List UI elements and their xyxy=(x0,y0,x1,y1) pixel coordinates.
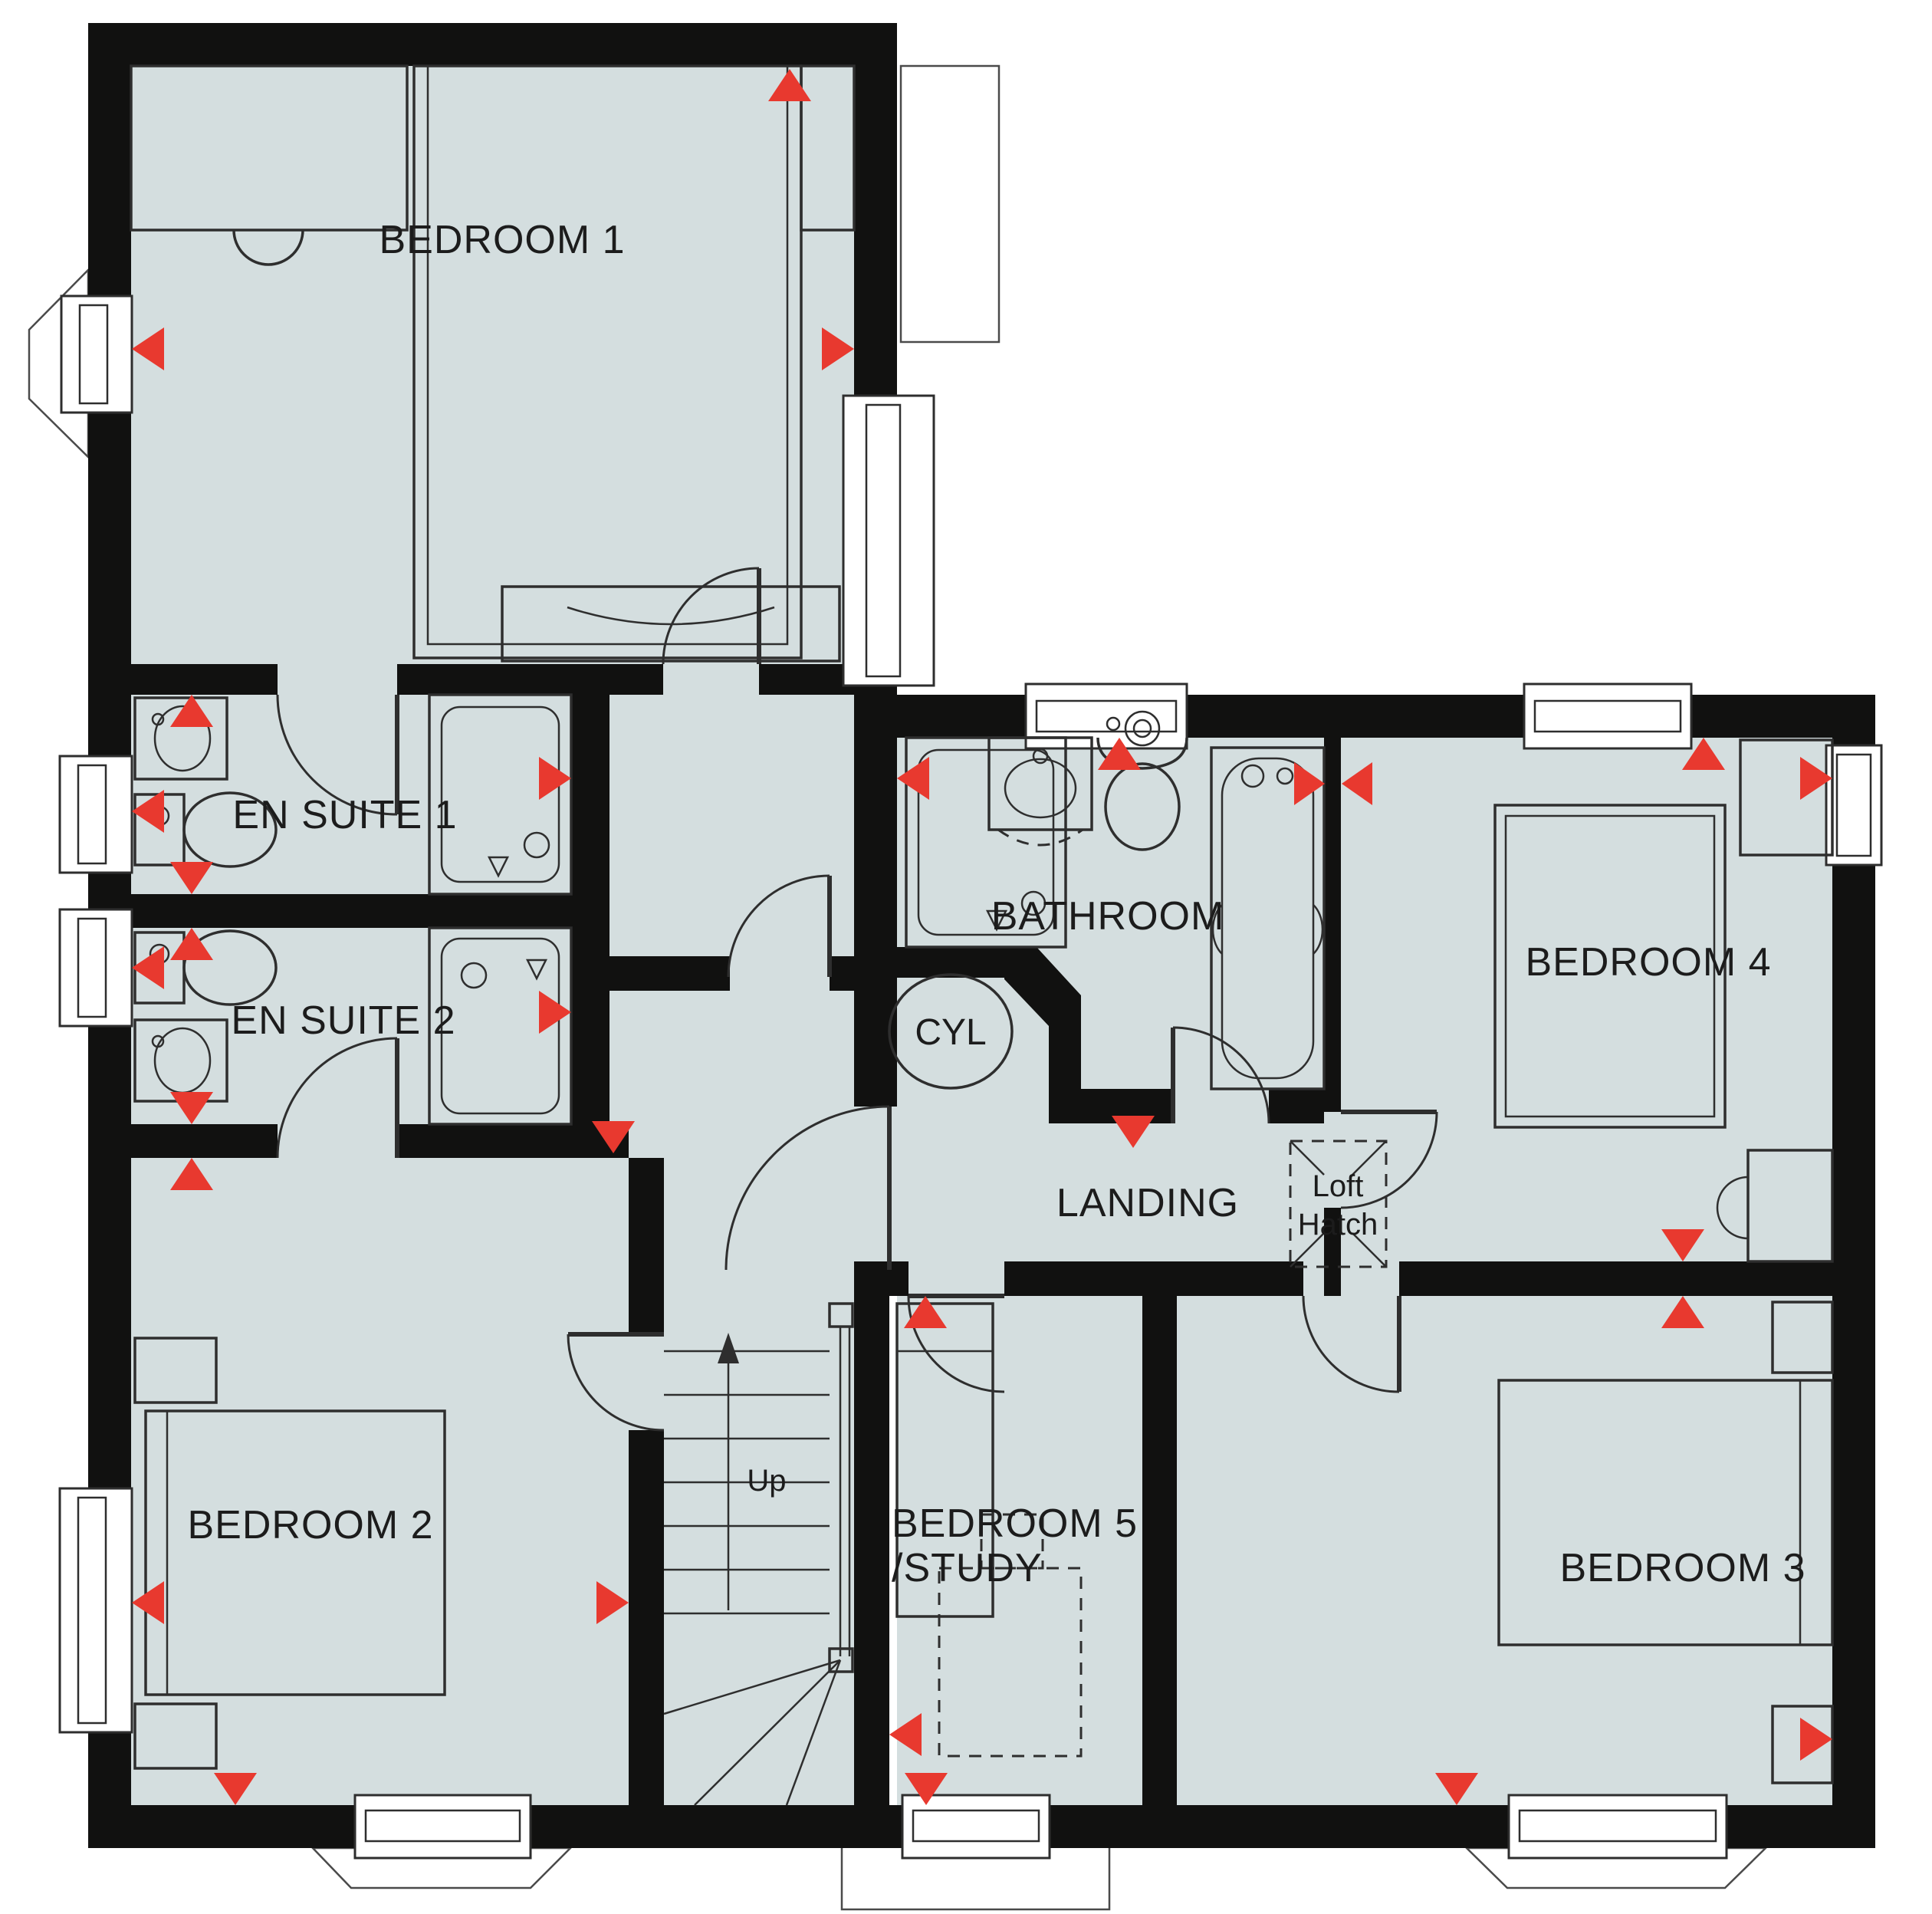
wall-bed1-es1-b xyxy=(397,664,663,695)
window-bedroom4-right xyxy=(1826,745,1881,865)
wall-es2-bed2-b xyxy=(397,1124,629,1158)
wall-corridor-stub-right xyxy=(830,956,854,991)
wall-bed1-es1-a xyxy=(131,664,278,695)
label-cylinder: CYL xyxy=(915,1012,986,1053)
wall-outer-right xyxy=(1832,695,1875,1848)
label-en-suite-2: EN SUITE 2 xyxy=(231,998,455,1043)
window-bedroom2-bottom xyxy=(355,1795,531,1858)
label-bedroom-5: BEDROOM 5 xyxy=(892,1501,1138,1546)
roof-outline-top-right xyxy=(901,66,999,342)
wall-es1-es2 xyxy=(131,894,571,928)
wall-outer-top xyxy=(88,23,897,66)
label-landing: LANDING xyxy=(1056,1181,1239,1225)
wall-landing-bed5-b xyxy=(1004,1261,1303,1296)
wall-corridor-stub-left xyxy=(609,956,730,991)
wall-bed1-es1-c xyxy=(759,664,854,695)
label-bedroom-4: BEDROOM 4 xyxy=(1525,940,1771,985)
window-bedroom2-left xyxy=(60,1488,132,1732)
label-bedroom-2: BEDROOM 2 xyxy=(187,1503,433,1547)
label-hatch: Hatch xyxy=(1298,1208,1378,1241)
wall-bed2-right-upper xyxy=(629,1158,664,1334)
wall-bath-bed4-upper xyxy=(1324,695,1341,1112)
wall-cyl-right xyxy=(1049,995,1081,1123)
wall-bathroom-bottom-b xyxy=(1269,1089,1324,1123)
label-bedroom-3: BEDROOM 3 xyxy=(1559,1546,1806,1590)
wall-landing-bed5-a xyxy=(854,1261,909,1296)
wall-es2-bed2-a xyxy=(131,1124,278,1158)
label-bedroom-5-study: /STUDY xyxy=(892,1546,1043,1590)
floor-plan-drawing: BEDROOM 1 EN SUITE 1 EN SUITE 2 BEDROOM … xyxy=(0,0,1932,1914)
window-ensuite2-left xyxy=(60,909,132,1026)
window-bedroom4-top xyxy=(1524,684,1691,748)
label-up: Up xyxy=(747,1464,786,1498)
window-bedroom3-bottom xyxy=(1509,1795,1727,1858)
wall-bed5-bed3 xyxy=(1142,1296,1177,1805)
label-loft: Loft xyxy=(1313,1169,1364,1203)
label-bathroom: BATHROOM xyxy=(991,894,1225,939)
label-bedroom-1: BEDROOM 1 xyxy=(379,218,625,262)
window-bedroom1-right xyxy=(843,396,934,686)
wall-outer-top-right-block xyxy=(854,695,1875,738)
label-en-suite-1: EN SUITE 1 xyxy=(232,793,457,837)
wall-bed2-right-lower xyxy=(629,1430,664,1805)
wall-cyl-top xyxy=(854,947,1004,978)
wall-ensuites-right xyxy=(571,664,609,1158)
window-bedroom1-left-bay xyxy=(61,296,132,413)
floor-plan-page: BEDROOM 1 EN SUITE 1 EN SUITE 2 BEDROOM … xyxy=(0,0,1932,1914)
window-bedroom5-bottom xyxy=(902,1795,1050,1858)
wall-bed4-bed3 xyxy=(1399,1261,1832,1296)
wall-bedroom5-left xyxy=(854,1261,889,1848)
window-ensuite1-left xyxy=(60,756,132,873)
